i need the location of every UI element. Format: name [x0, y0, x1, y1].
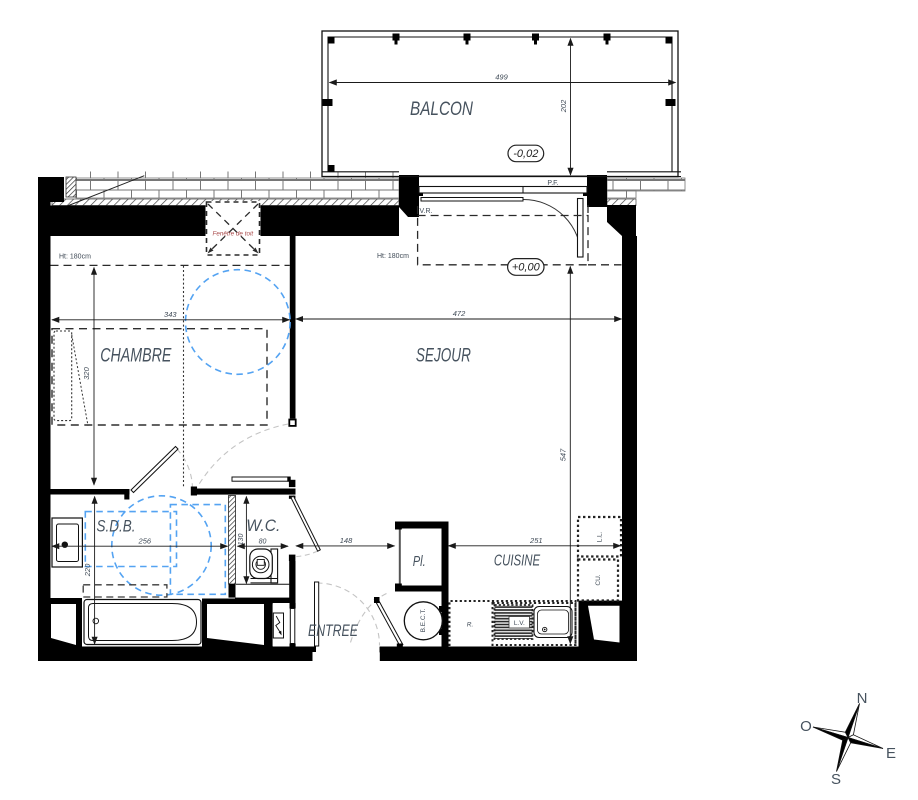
- svg-text:256: 256: [138, 536, 152, 545]
- svg-text:W.C.: W.C.: [246, 516, 280, 535]
- svg-text:547: 547: [558, 448, 567, 461]
- svg-text:S: S: [831, 771, 841, 788]
- svg-text:Pl.: Pl.: [413, 553, 426, 570]
- svg-text:343: 343: [164, 310, 177, 319]
- svg-text:80: 80: [259, 538, 267, 545]
- svg-text:R.: R.: [467, 622, 474, 629]
- svg-text:E: E: [886, 745, 896, 762]
- svg-text:SEJOUR: SEJOUR: [416, 346, 471, 367]
- svg-text:S.D.B.: S.D.B.: [97, 517, 136, 536]
- svg-text:Ht: 180cm: Ht: 180cm: [59, 254, 91, 261]
- svg-text:P.F.: P.F.: [547, 180, 558, 187]
- svg-text:+0,00: +0,00: [512, 261, 541, 273]
- svg-text:BALCON: BALCON: [410, 99, 473, 120]
- svg-text:CU.: CU.: [595, 574, 602, 585]
- svg-text:V.R.: V.R.: [420, 208, 433, 215]
- svg-text:Fenêtre de toit: Fenêtre de toit: [212, 231, 253, 238]
- svg-text:320: 320: [82, 366, 91, 379]
- svg-text:130: 130: [238, 534, 245, 546]
- svg-text:L.L.: L.L.: [597, 531, 604, 542]
- svg-text:B.E.C.T.: B.E.C.T.: [420, 608, 427, 632]
- svg-text:CUISINE: CUISINE: [494, 553, 541, 570]
- svg-text:499: 499: [495, 73, 508, 82]
- svg-text:251: 251: [529, 536, 543, 545]
- svg-text:L.V.: L.V.: [514, 620, 525, 627]
- svg-text:148: 148: [340, 536, 353, 545]
- svg-text:472: 472: [453, 309, 466, 318]
- svg-text:-0,02: -0,02: [513, 148, 538, 160]
- svg-text:CHAMBRE: CHAMBRE: [100, 346, 171, 367]
- svg-text:O: O: [800, 718, 812, 735]
- svg-text:202: 202: [559, 99, 568, 113]
- svg-text:N: N: [857, 690, 868, 707]
- svg-text:Ht: 180cm: Ht: 180cm: [377, 253, 409, 260]
- svg-text:ENTREE: ENTREE: [308, 621, 358, 640]
- svg-text:220: 220: [83, 563, 92, 577]
